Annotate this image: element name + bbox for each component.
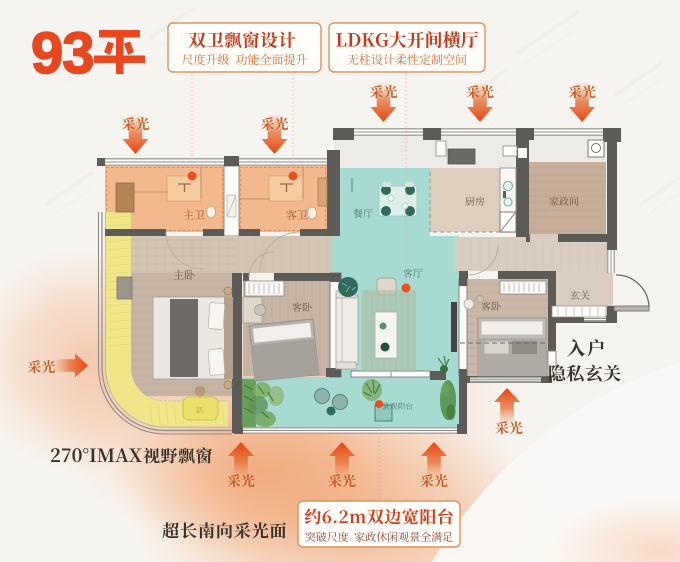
- svg-text:93: 93: [31, 21, 94, 86]
